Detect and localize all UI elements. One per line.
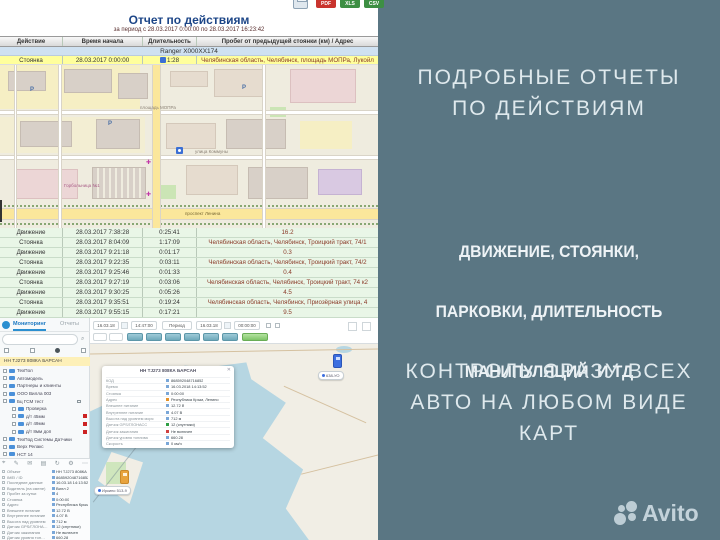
alert-icon	[83, 422, 87, 426]
report-table-header: Действие Время начала Длительность Пробе…	[0, 36, 378, 47]
street-label: площадь МОПРа	[140, 105, 176, 110]
vehicle-marker-label[interactable]: Иркино 513-9	[94, 486, 131, 495]
track-toolbar: 16.03.18 14:47:00 Период 16.03.18 00:00:…	[90, 318, 378, 344]
popup-title: НН ТJ273 808КА БАРСАН	[102, 368, 234, 373]
tree-item[interactable]: Проверка	[0, 405, 90, 413]
value-icon	[52, 498, 55, 501]
avito-dot-icon	[618, 505, 625, 512]
value-icon	[166, 404, 169, 407]
value-icon	[52, 476, 55, 479]
tree-item[interactable]: д/т 8мм доп	[0, 428, 90, 436]
map-tree-row	[0, 205, 378, 207]
table-row-highlighted[interactable]: Стоянка 28.03.2017 0:00:00 1:28 Челябинс…	[0, 56, 378, 65]
map-scale-bar	[0, 200, 2, 222]
vehicle-marker-label[interactable]: 638-УО	[318, 371, 344, 380]
value-icon	[52, 525, 55, 528]
more-icon[interactable]: ⋯	[82, 460, 88, 467]
settings-icon[interactable]: ⚙	[68, 460, 73, 467]
checkbox-icon[interactable]	[2, 509, 5, 512]
table-row[interactable]: Движение28.03.2017 7:38:280:25:4116.2	[0, 228, 378, 238]
map-pin-icon	[160, 57, 166, 63]
checkbox-icon[interactable]	[2, 503, 5, 506]
checkbox-icon[interactable]	[2, 531, 5, 534]
details-rows: ОбъектНН ТJ273 808КА Б… IMEI / ID8685920…	[0, 469, 90, 540]
sidebar-tabs: Мониторинг Отчеты	[0, 318, 90, 332]
map-building	[96, 119, 140, 149]
value-icon	[166, 379, 169, 382]
filter-selected-icon[interactable]	[55, 348, 60, 353]
avito-wordmark: Avito	[642, 500, 699, 527]
parking-icon: P	[242, 85, 246, 91]
detail-row: Датчик уровня топ…660.28	[0, 535, 90, 540]
map-building	[214, 69, 266, 97]
tree-item[interactable]: Верх Релакс	[0, 443, 90, 451]
value-icon	[52, 492, 55, 495]
menu-icon[interactable]	[2, 321, 10, 329]
promo-column: ПОДРОБНЫЕ ОТЧЕТЫ ПО ДЕЙСТВИЯМ ДВИЖЕНИЕ, …	[378, 0, 720, 540]
object-tag-icon	[9, 445, 15, 449]
object-tag-icon	[9, 399, 15, 403]
object-tag-icon	[9, 452, 15, 456]
track-segment-toggle[interactable]	[203, 333, 219, 341]
column-header: Пробег от предыдущей стоянки (км) / Адре…	[197, 37, 378, 46]
detail-row: Датчик зажиганияНе включен	[0, 530, 90, 536]
checkbox-icon[interactable]	[2, 470, 5, 473]
value-icon	[52, 536, 55, 539]
tab-monitoring[interactable]: Мониторинг	[13, 321, 46, 331]
filter-icon[interactable]	[81, 348, 86, 353]
refresh-icon[interactable]: ↻	[55, 460, 60, 467]
map-building	[300, 121, 352, 149]
promo-heading-reports: ПОДРОБНЫЕ ОТЧЕТЫ ПО ДЕЙСТВИЯМ	[378, 62, 720, 124]
map-street	[262, 65, 266, 228]
tree-item[interactable]: ТехПод Системы Датчики	[0, 435, 90, 443]
alert-icon	[83, 414, 87, 418]
period-select[interactable]: Период	[162, 321, 192, 330]
checkbox-icon[interactable]	[2, 476, 5, 479]
map-main-road	[152, 65, 161, 228]
tracker-sidebar: Мониторинг Отчеты ⌕ НН ТJ273 808КА БАРСА…	[0, 318, 90, 540]
avito-dot-icon	[628, 513, 636, 521]
value-icon	[52, 531, 55, 534]
hospital-icon: ✚	[146, 159, 151, 166]
track-segment-toggle[interactable]	[127, 333, 143, 341]
screenshots-column: PDF XLS CSV Отчет по действиям за период…	[0, 0, 378, 540]
value-icon	[52, 509, 55, 512]
time-from-field[interactable]: 14:47:00	[131, 321, 157, 330]
checkbox-icon[interactable]	[2, 481, 5, 484]
tree-item[interactable]: Автомодель	[0, 375, 90, 383]
report-screenshot: PDF XLS CSV Отчет по действиям за период…	[0, 0, 378, 318]
vehicle-group-row: Ranger X000XX174	[0, 47, 378, 56]
details-toolbar: ⌖ ✎ ✉ ▤ ↻ ⚙ ⋯	[2, 460, 88, 467]
hospital-icon: ✚	[146, 191, 151, 198]
value-icon	[166, 436, 169, 439]
value-icon	[166, 423, 169, 426]
filter-icon[interactable]	[4, 348, 9, 353]
search-input[interactable]	[2, 334, 78, 345]
object-tag-icon	[18, 407, 24, 411]
ad-canvas: PDF XLS CSV Отчет по действиям за период…	[0, 0, 720, 540]
fullscreen-button[interactable]	[362, 322, 371, 331]
checkbox-icon[interactable]	[3, 437, 7, 441]
detail-row: ОбъектНН ТJ273 808КА Б…	[0, 469, 90, 475]
sea-map[interactable]: 638-УО Иркино 513-9 НН ТJ273 808КА БАРСА…	[90, 344, 378, 540]
message-icon[interactable]: ✉	[27, 460, 32, 467]
tree-item[interactable]: ООО Вилла 003	[0, 390, 90, 398]
close-icon[interactable]: ✕	[227, 367, 231, 373]
object-tag-icon	[9, 369, 15, 373]
report-table-body: Движение28.03.2017 7:38:280:25:4116.2 Ст…	[0, 228, 378, 318]
detail-row: Последние данные16.03.18 14:13:52	[0, 480, 90, 486]
map-building	[248, 167, 308, 199]
value-icon	[166, 398, 169, 401]
parking-icon: P	[30, 87, 34, 93]
marker-dot-icon	[98, 489, 101, 492]
export-pdf-button[interactable]: PDF	[316, 0, 336, 8]
object-tag-icon	[18, 422, 24, 426]
object-popup: НН ТJ273 808КА БАРСАН ✕ КОД8685920487168…	[102, 366, 234, 448]
detail-row: АдресРеспублика Крым…	[0, 502, 90, 508]
map-building	[20, 121, 72, 147]
street-label: проспект Ленина	[185, 211, 220, 216]
column-header: Действие	[0, 37, 63, 46]
popup-rows: КОД868592048716852 Время16.03.2018 14:13…	[106, 377, 230, 446]
time-to-field[interactable]: 00:00:00	[234, 321, 260, 330]
report-period: за период с 28.03.2017 0:00:00 по 28.03.…	[0, 27, 378, 33]
city-map[interactable]: площадь МОПРа улица Коммуны проспект Лен…	[0, 65, 378, 228]
print-icon[interactable]	[293, 0, 308, 9]
tree-item[interactable]: д/т 49мм	[0, 420, 90, 428]
checkbox-icon[interactable]	[2, 498, 5, 501]
tree-item[interactable]: НСТ 14	[0, 451, 90, 459]
tree-item[interactable]: Партнеры и клиенты	[0, 382, 90, 390]
track-step-button[interactable]	[93, 333, 107, 341]
track-segment-toggle[interactable]	[184, 333, 200, 341]
checkbox-icon[interactable]	[3, 452, 7, 456]
checkbox-icon[interactable]	[12, 422, 16, 426]
track-go-button[interactable]	[242, 333, 268, 341]
map-street	[0, 155, 378, 160]
checkbox-icon[interactable]	[2, 487, 5, 490]
checkbox-icon[interactable]	[12, 414, 16, 418]
checkbox-icon[interactable]	[2, 536, 5, 539]
tracker-screenshot: Мониторинг Отчеты ⌕ НН ТJ273 808КА БАРСА…	[0, 318, 378, 540]
avito-dot-icon	[626, 501, 637, 512]
filter-icon[interactable]	[30, 348, 35, 353]
marker-dot-icon	[322, 374, 325, 377]
tree-item[interactable]: Бц ГСМ тест	[0, 397, 90, 405]
search-icon[interactable]: ⌕	[81, 336, 88, 343]
promo-heading-control: КОНТРОЛЬ СРАЗУ ВСЕХ АВТО НА ЛЮБОМ ВИДЕ К…	[378, 356, 720, 449]
tree-item[interactable]: д/т 45мм	[0, 413, 90, 421]
report-title: Отчет по действиям	[0, 13, 378, 27]
calendar-icon[interactable]	[224, 322, 231, 329]
avito-logo: Avito	[612, 498, 716, 532]
value-icon	[52, 503, 55, 506]
track-segment-toggle[interactable]	[222, 333, 238, 341]
table-row[interactable]: Стоянка28.03.2017 8:04:091:17:09Челябинс…	[0, 238, 378, 248]
track-segment-toggle[interactable]	[165, 333, 181, 341]
object-details-panel: ⌖ ✎ ✉ ▤ ↻ ⚙ ⋯ ОбъектНН ТJ273 808КА Б… IM…	[0, 458, 90, 540]
chart-icon[interactable]: ▤	[41, 460, 47, 467]
value-icon	[166, 442, 169, 445]
selected-object-row[interactable]: НН ТJ273 808КА БАРСАН	[0, 357, 90, 366]
map-building	[118, 73, 148, 99]
map-building	[290, 69, 356, 103]
checkbox-icon[interactable]	[3, 445, 7, 449]
value-icon	[166, 392, 169, 395]
checkbox-icon[interactable]	[3, 369, 7, 373]
value-icon	[52, 520, 55, 523]
vehicle-marker[interactable]	[120, 470, 129, 484]
value-icon	[166, 385, 169, 388]
table-row[interactable]: Движение28.03.2017 9:30:250:05:264.5	[0, 288, 378, 298]
tab-reports[interactable]: Отчеты	[60, 321, 79, 327]
map-street	[0, 110, 378, 115]
monitor-icon	[77, 400, 81, 403]
object-tag-icon	[9, 392, 15, 396]
calendar-icon[interactable]	[121, 322, 128, 329]
table-row[interactable]: Движение28.03.2017 9:25:460:01:330.4	[0, 268, 378, 278]
layers-button[interactable]	[348, 322, 357, 331]
checkbox-icon[interactable]	[3, 399, 7, 403]
transit-stop-icon	[176, 147, 183, 154]
column-header: Время начала	[63, 37, 143, 46]
object-tag-icon	[9, 384, 15, 388]
map-street	[58, 65, 62, 228]
checkbox-icon[interactable]	[275, 323, 280, 328]
map-street	[14, 65, 17, 228]
table-row[interactable]: Движение28.03.2017 9:55:150:17:219.5	[0, 308, 378, 318]
table-row[interactable]: Стоянка28.03.2017 9:22:350:03:11Челябинс…	[0, 258, 378, 268]
object-tag-icon	[18, 430, 24, 434]
popup-row: Скорость0 км/ч	[106, 440, 230, 446]
tree-item[interactable]: ТехПол	[0, 367, 90, 375]
checkbox-icon[interactable]	[12, 407, 16, 411]
object-tag-icon	[9, 376, 15, 380]
checkbox-icon[interactable]	[3, 376, 7, 380]
parking-icon: P	[108, 121, 112, 127]
object-tag-icon	[18, 414, 24, 418]
map-tree-row	[0, 223, 378, 225]
export-xls-button[interactable]: XLS	[340, 0, 360, 8]
table-row[interactable]: Стоянка28.03.2017 9:27:190:03:06Челябинс…	[0, 278, 378, 288]
object-tag-icon	[9, 437, 15, 441]
value-icon	[52, 487, 55, 490]
checkbox-icon[interactable]	[266, 323, 271, 328]
map-building	[318, 169, 362, 195]
map-building	[166, 123, 216, 149]
detail-row: IMEI / ID868592048716852	[0, 475, 90, 481]
map-building	[226, 119, 286, 149]
track-segment-toggle[interactable]	[146, 333, 162, 341]
checkbox-icon[interactable]	[2, 520, 5, 523]
report-export-toolbar: PDF XLS CSV	[0, 0, 378, 13]
detail-row: Датчик GPS/ГЛОНА…12 (спутники)	[0, 524, 90, 530]
date-to-field[interactable]: 16.03.18	[196, 321, 222, 330]
column-header: Длительность	[143, 37, 197, 46]
view-filter-bar	[4, 348, 86, 353]
value-icon	[52, 470, 55, 473]
map-building	[170, 71, 208, 87]
map-building	[92, 167, 146, 199]
checkbox-icon[interactable]	[2, 514, 5, 517]
value-icon	[166, 430, 169, 433]
edit-icon[interactable]: ✎	[14, 460, 19, 467]
street-label: улица Коммуны	[195, 149, 228, 154]
value-icon	[52, 481, 55, 484]
poi-label: Горбольница №1	[64, 183, 100, 188]
checkbox-icon[interactable]	[12, 430, 16, 434]
track-step-button[interactable]	[109, 333, 123, 341]
date-from-field[interactable]: 16.03.18	[93, 321, 119, 330]
avito-dot-icon	[614, 513, 626, 525]
table-row[interactable]: Движение28.03.2017 9:21:180:01:170.3	[0, 248, 378, 258]
value-icon	[166, 411, 169, 414]
target-icon[interactable]: ⌖	[2, 460, 5, 467]
checkbox-icon[interactable]	[3, 392, 7, 396]
alert-icon	[83, 430, 87, 434]
checkbox-icon[interactable]	[3, 384, 7, 388]
map-building	[186, 165, 238, 195]
table-row[interactable]: Стоянка28.03.2017 9:35:510:19:24Челябинс…	[0, 298, 378, 308]
map-building	[64, 69, 112, 93]
vehicle-marker[interactable]	[333, 354, 342, 368]
value-icon	[52, 514, 55, 517]
checkbox-icon[interactable]	[2, 492, 5, 495]
value-icon	[166, 417, 169, 420]
checkbox-icon[interactable]	[2, 525, 5, 528]
object-tree: ТехПол Автомодель Партнеры и клиенты ООО…	[0, 367, 90, 458]
